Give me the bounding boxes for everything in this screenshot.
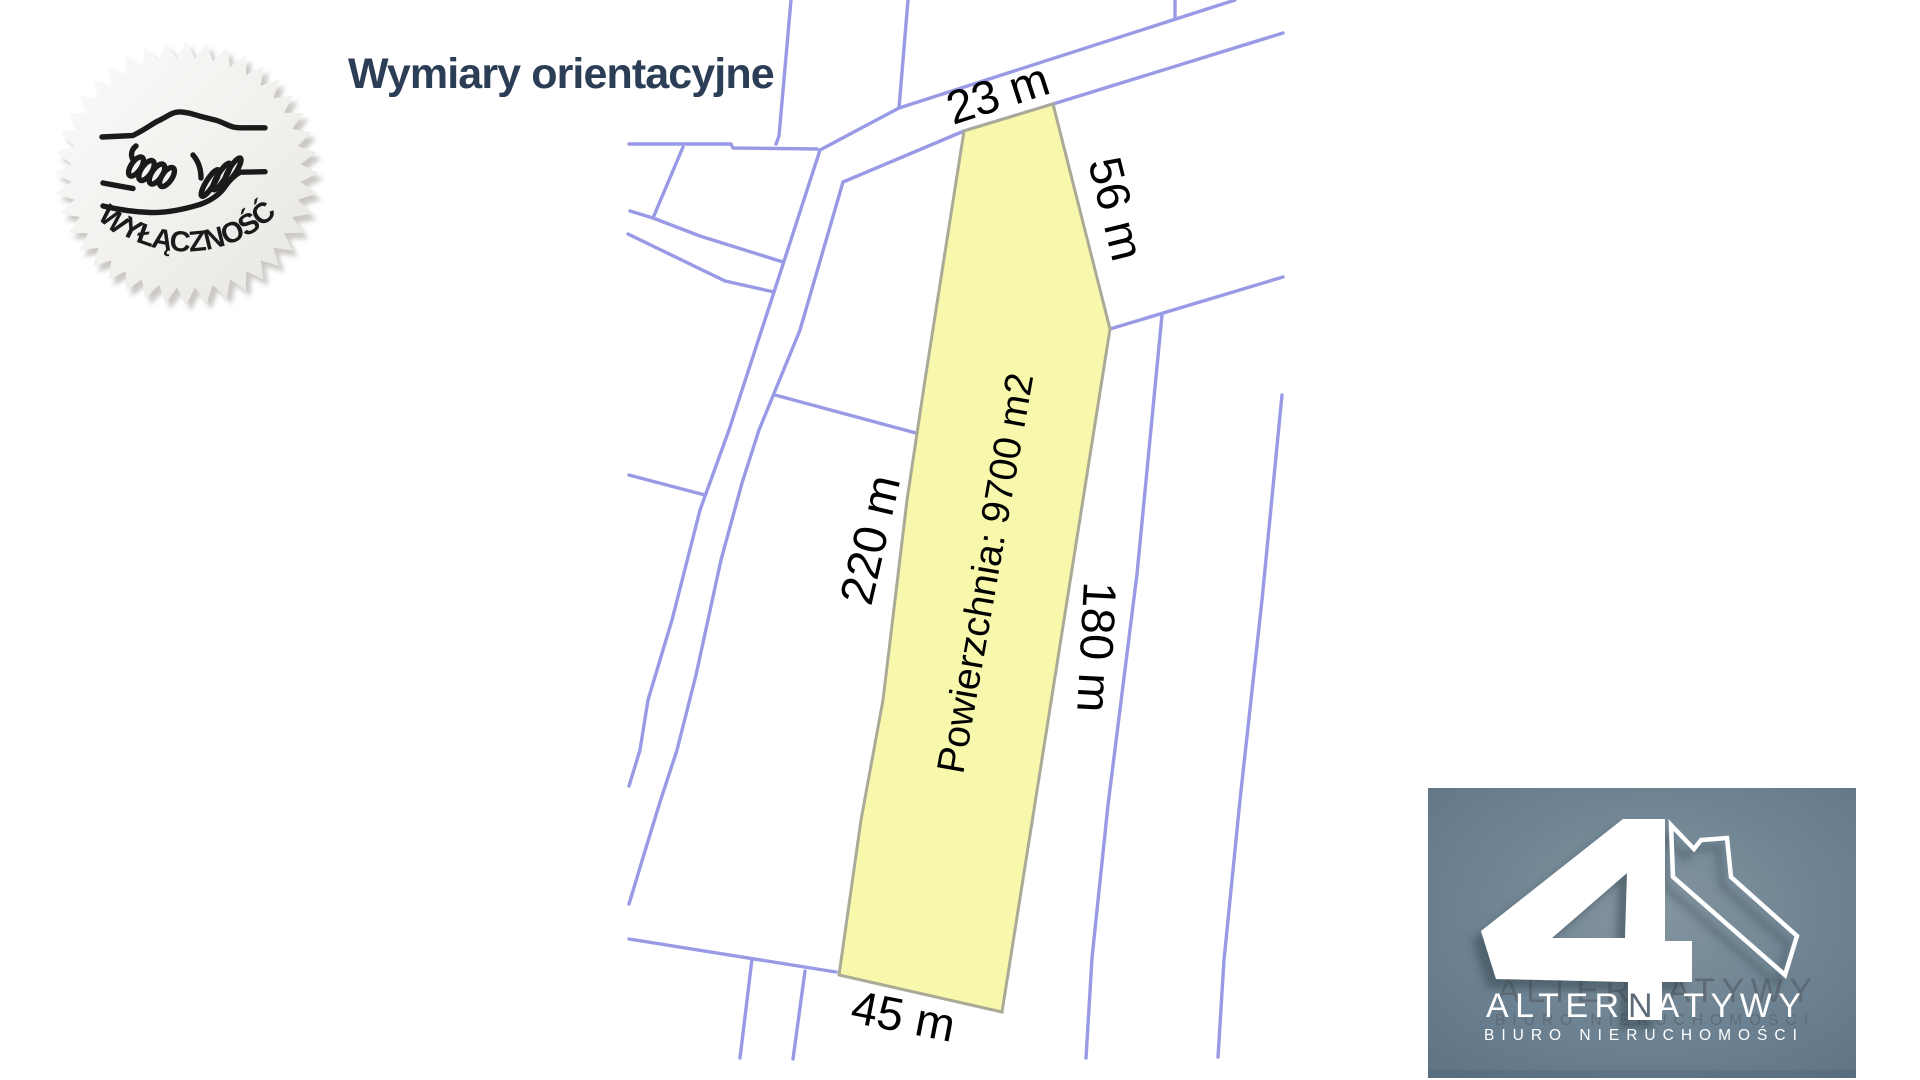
svg-text:180 m: 180 m <box>1067 580 1127 713</box>
svg-text:Wymiary orientacyjne: Wymiary orientacyjne <box>348 50 774 98</box>
svg-text:N: N <box>1628 987 1653 1025</box>
svg-text:BIURO NIERUCHOMOŚCI: BIURO NIERUCHOMOŚCI <box>1484 1026 1804 1044</box>
